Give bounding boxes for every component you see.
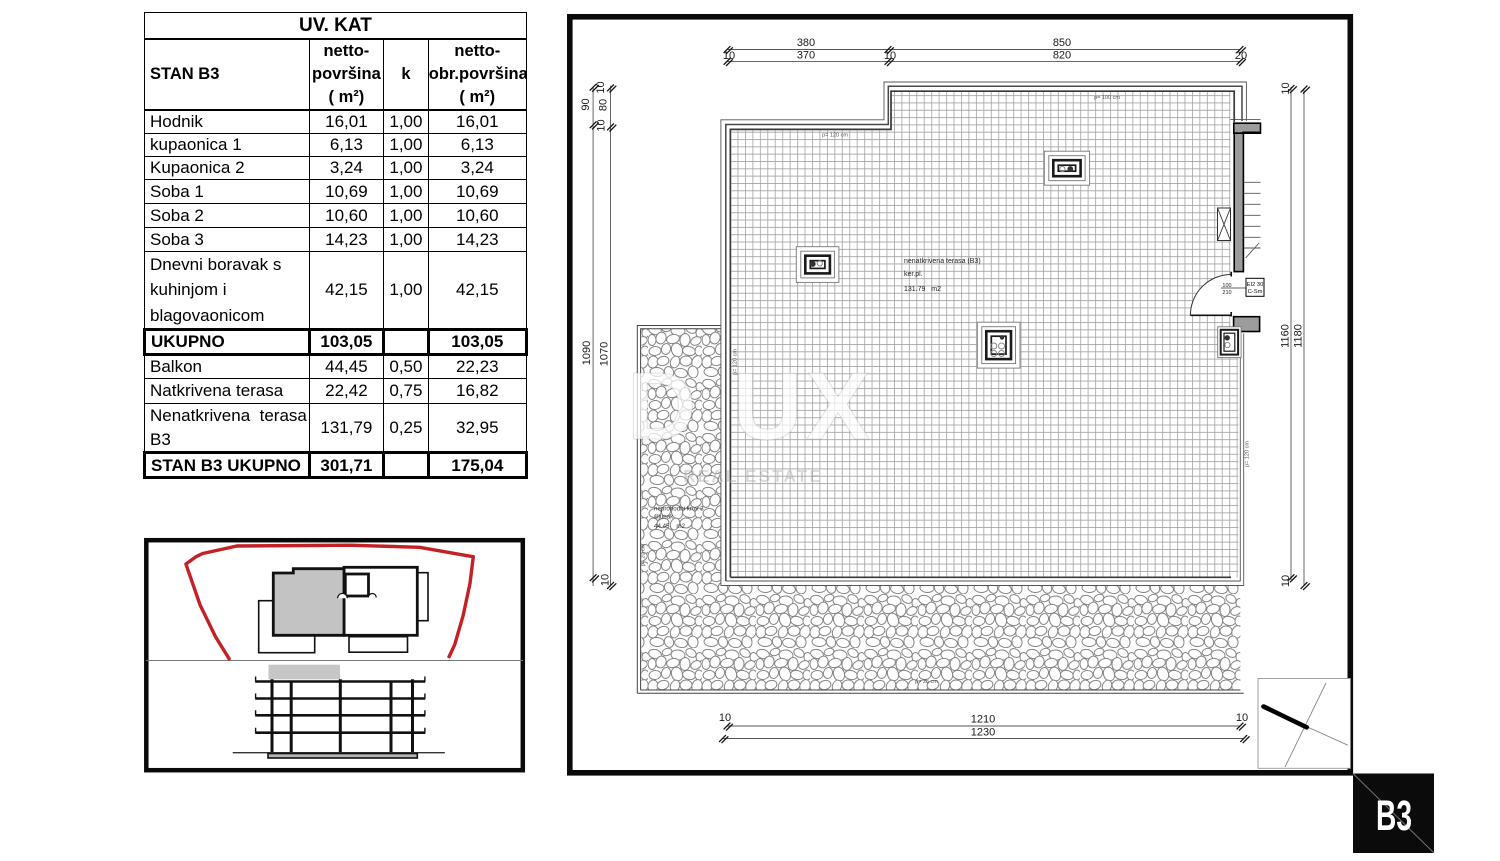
svg-text:ker.pl.: ker.pl. bbox=[904, 271, 923, 278]
svg-text:p= 120 cm: p= 120 cm bbox=[733, 349, 739, 375]
svg-text:10: 10 bbox=[1236, 712, 1248, 724]
svg-text:X: X bbox=[806, 353, 870, 460]
svg-text:10: 10 bbox=[595, 81, 607, 93]
svg-text:10: 10 bbox=[596, 119, 608, 131]
svg-text:10: 10 bbox=[719, 712, 731, 724]
svg-text:820: 820 bbox=[1053, 50, 1071, 62]
svg-text:U: U bbox=[733, 353, 802, 460]
svg-text:B3: B3 bbox=[1376, 792, 1412, 840]
svg-text:šljunak: šljunak bbox=[654, 514, 674, 521]
svg-text:1090: 1090 bbox=[581, 341, 593, 365]
svg-text:p= 25 cm: p= 25 cm bbox=[915, 679, 938, 685]
svg-text:C-Sm: C-Sm bbox=[1248, 289, 1263, 295]
svg-text:REAL ESTATE: REAL ESTATE bbox=[683, 466, 824, 486]
svg-text:p= 100 cm: p= 100 cm bbox=[1094, 95, 1120, 101]
svg-text:10: 10 bbox=[1280, 575, 1292, 587]
svg-text:EI2 30: EI2 30 bbox=[1247, 282, 1264, 288]
svg-text:1070: 1070 bbox=[599, 342, 611, 366]
svg-text:1230: 1230 bbox=[971, 727, 995, 739]
svg-text:1210: 1210 bbox=[971, 714, 995, 726]
svg-text:10: 10 bbox=[884, 50, 896, 62]
svg-text:nenatkrivena terasa (B3): nenatkrivena terasa (B3) bbox=[904, 258, 981, 265]
svg-text:20: 20 bbox=[1235, 50, 1247, 62]
svg-text:131.79 m2: 131.79 m2 bbox=[904, 286, 941, 293]
svg-text:10: 10 bbox=[600, 574, 612, 586]
svg-text:10: 10 bbox=[723, 50, 735, 62]
svg-text:neprohodni krov 3: neprohodni krov 3 bbox=[654, 506, 704, 513]
svg-text:p= 120 cm: p= 120 cm bbox=[822, 133, 848, 139]
svg-text:370: 370 bbox=[797, 50, 815, 62]
svg-text:1160: 1160 bbox=[1280, 324, 1292, 348]
svg-text:210: 210 bbox=[1222, 290, 1231, 296]
svg-text:p= 120 cm: p= 120 cm bbox=[1245, 441, 1251, 467]
svg-text:90: 90 bbox=[580, 98, 592, 110]
svg-text:850: 850 bbox=[1053, 37, 1071, 49]
svg-text:1180: 1180 bbox=[1293, 324, 1305, 348]
svg-text:10: 10 bbox=[1280, 82, 1292, 94]
svg-text:80: 80 bbox=[598, 99, 610, 111]
svg-text:380: 380 bbox=[797, 37, 815, 49]
svg-text:p= 20 cm: p= 20 cm bbox=[641, 543, 647, 566]
svg-text:44.45 m2: 44.45 m2 bbox=[654, 523, 686, 530]
svg-text:D: D bbox=[627, 353, 696, 460]
